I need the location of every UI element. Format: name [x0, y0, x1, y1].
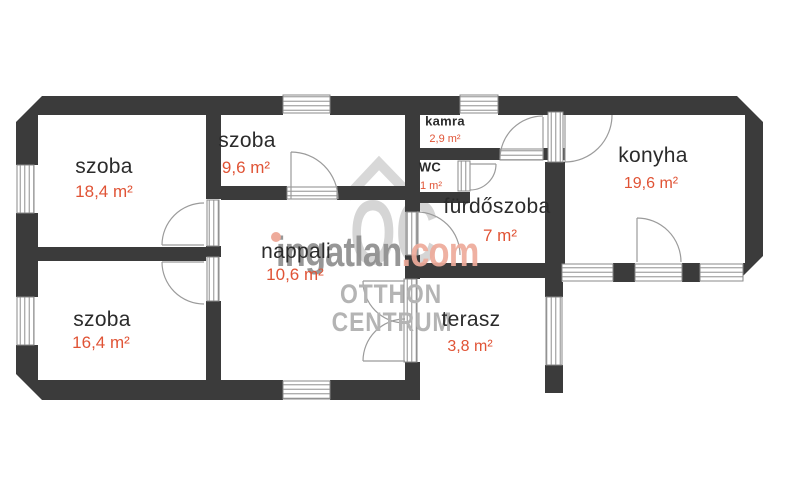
door-frame: [458, 161, 470, 191]
door-frame: [500, 149, 543, 160]
door-arc: [565, 115, 612, 162]
window: [17, 165, 34, 213]
room-area-kamra: 2,9 m²: [429, 133, 460, 145]
window: [283, 381, 330, 399]
room-area-szoba-3: 16,4 m²: [72, 333, 130, 353]
watermark-centrum: CENTRUM: [332, 309, 453, 336]
floorplan-canvas: OC: [0, 0, 787, 500]
room-name-konyha: konyha: [618, 144, 688, 168]
room-area-furdoszoba: 7 m²: [483, 226, 517, 246]
door-frame: [207, 257, 219, 301]
door-arc: [162, 203, 204, 245]
door-arc: [162, 262, 204, 304]
room-name-furdoszoba: fürdőszoba: [444, 195, 551, 219]
door-frame: [548, 112, 563, 162]
watermark-brand-accent: .com: [401, 228, 478, 275]
door-frame: [635, 264, 682, 281]
room-name-szoba-1: szoba: [75, 155, 133, 179]
door-frame: [207, 200, 219, 246]
window: [17, 297, 34, 345]
door-arc: [637, 218, 681, 262]
window: [460, 95, 498, 113]
door-frame: [287, 187, 337, 199]
room-name-szoba-2: szoba: [218, 129, 276, 153]
room-area-terasz: 3,8 m²: [447, 338, 492, 356]
window: [700, 264, 743, 281]
door-arc: [470, 164, 496, 190]
room-area-nappali: 10,6 m²: [266, 265, 324, 285]
room-name-wc: WC: [419, 160, 441, 175]
window: [546, 297, 562, 365]
room-area-szoba-2: 9,6 m²: [222, 158, 270, 178]
room-name-szoba-3: szoba: [73, 308, 131, 332]
window: [283, 95, 330, 113]
room-name-terasz: terasz: [442, 308, 501, 332]
room-area-wc: 1 m²: [420, 180, 442, 192]
watermark-otthon: OTTHON: [340, 281, 442, 308]
room-area-szoba-1: 18,4 m²: [75, 182, 133, 202]
window: [562, 264, 613, 281]
room-name-nappali: nappali: [261, 240, 331, 264]
room-name-kamra: kamra: [425, 114, 465, 129]
room-area-konyha: 19,6 m²: [624, 175, 678, 193]
